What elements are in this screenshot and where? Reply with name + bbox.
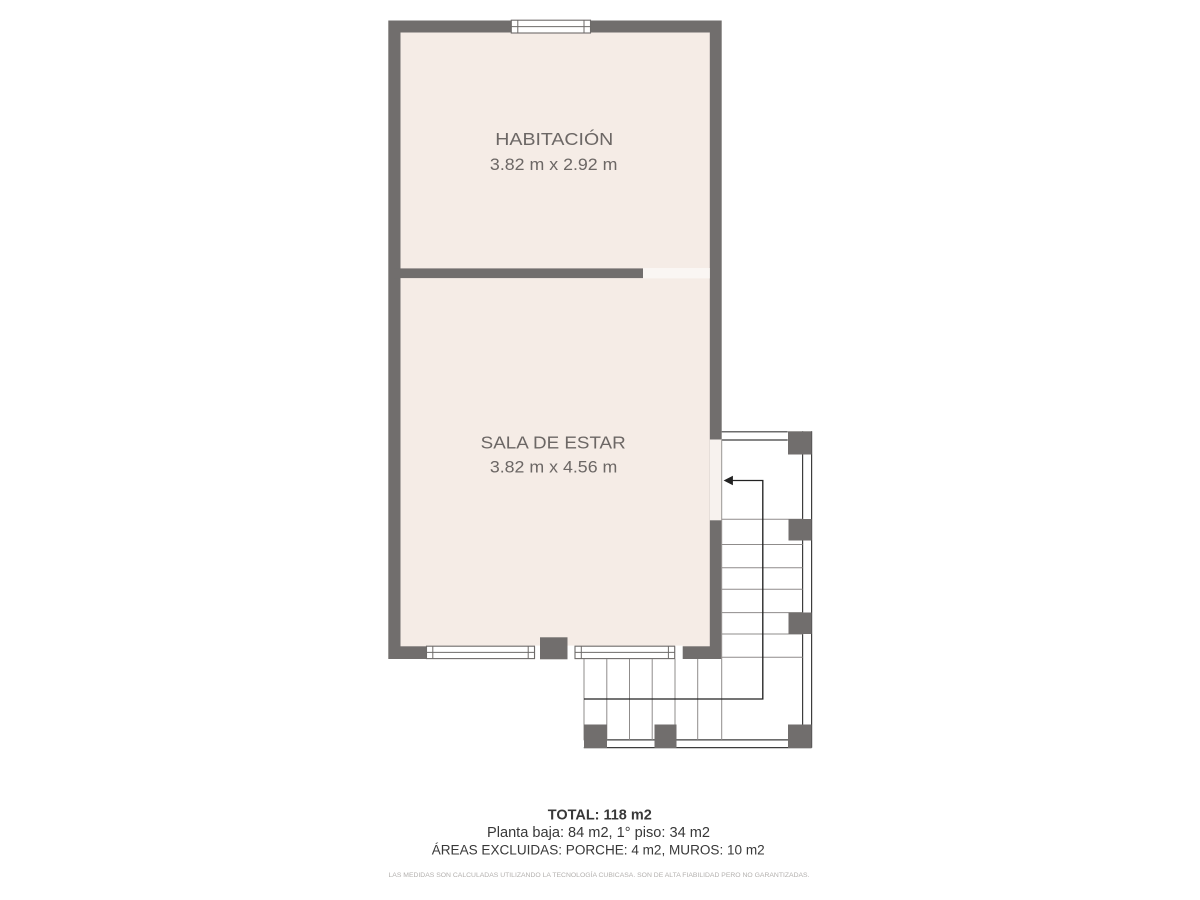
- svg-text:Planta baja: 84 m2, 1° piso: 3: Planta baja: 84 m2, 1° piso: 34 m2: [487, 825, 710, 841]
- svg-text:3.82 m x 4.56 m: 3.82 m x 4.56 m: [490, 459, 618, 477]
- svg-text:SALA DE ESTAR: SALA DE ESTAR: [481, 433, 626, 453]
- svg-text:TOTAL: 118 m2: TOTAL: 118 m2: [548, 808, 652, 824]
- svg-text:ÁREAS EXCLUIDAS: PORCHE: 4 m2,: ÁREAS EXCLUIDAS: PORCHE: 4 m2, MUROS: 10…: [432, 841, 765, 858]
- svg-text:HABITACIÓN: HABITACIÓN: [495, 128, 613, 149]
- svg-text:3.82 m x 2.92 m: 3.82 m x 2.92 m: [490, 156, 618, 174]
- svg-text:LAS MEDIDAS SON CALCULADAS UTI: LAS MEDIDAS SON CALCULADAS UTILIZANDO LA…: [389, 870, 810, 879]
